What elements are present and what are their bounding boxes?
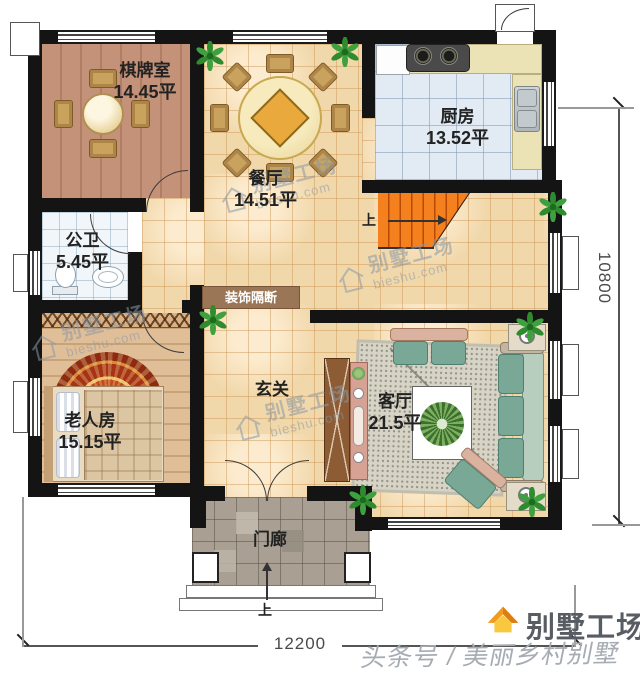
room-label-elder: 老人房15.15平 [35, 410, 145, 454]
porch-step [186, 585, 376, 598]
chess-chair [131, 100, 150, 128]
window-frame [562, 429, 579, 479]
brand-logo-text: 别墅工场 [526, 604, 640, 646]
room-label-living: 客厅21.5平 [345, 391, 445, 435]
stair-direction-line [388, 220, 440, 222]
stove-burner [414, 47, 432, 65]
window [548, 341, 562, 399]
loveseat-cushion [431, 341, 466, 365]
stair-base-line [378, 247, 434, 249]
sofa-cushion [498, 438, 524, 478]
sink-basin [517, 110, 537, 128]
stove-burner [440, 47, 458, 65]
room-label-chess: 棋牌室14.45平 [85, 60, 205, 104]
window [388, 517, 500, 530]
dim-extension [22, 497, 24, 647]
sofa-cushion [498, 396, 524, 436]
wall-kitchen-bottom [362, 180, 562, 193]
porch-pillar [344, 552, 371, 583]
plant-icon [538, 192, 568, 222]
dim-extension [592, 524, 640, 526]
window [58, 30, 155, 44]
window-frame [562, 344, 579, 396]
window [542, 82, 556, 146]
plant-icon [517, 487, 547, 517]
window [548, 426, 562, 482]
window [233, 30, 327, 44]
dim-line-height [618, 108, 620, 526]
wall-bath-right [128, 252, 142, 300]
dim-height-label: 10800 [594, 248, 614, 308]
stair-up-label: 上 [362, 210, 376, 230]
room-label-porch: 门廊 [230, 529, 310, 550]
window-frame [13, 254, 28, 292]
window [548, 233, 562, 293]
loveseat-cushion [393, 341, 428, 365]
wall-porch-left-stub [190, 486, 206, 528]
plant-icon [515, 312, 545, 342]
chess-chair [54, 100, 73, 128]
sink-basin [517, 89, 537, 107]
wall-chess-bottom [42, 198, 146, 212]
brand-house-icon [482, 598, 524, 640]
dining-chair [210, 104, 229, 132]
dim-line-width [22, 645, 258, 647]
plant-icon [348, 485, 378, 515]
room-label-bath: 公卫5.45平 [35, 230, 130, 274]
window [58, 483, 155, 497]
sofa-cushion [498, 354, 524, 394]
window-frame [13, 381, 28, 433]
kitchen-backdoor-gap [497, 30, 533, 44]
entry-direction-line [266, 570, 268, 600]
chimney-outline [10, 22, 40, 56]
fridge [376, 45, 410, 75]
dim-extension [558, 107, 634, 109]
porch-pillar [192, 552, 219, 583]
porch-step [179, 598, 383, 611]
plant-icon [330, 37, 360, 67]
plant-icon [198, 305, 228, 335]
entry-arrowhead-icon [262, 562, 272, 571]
window-frame [562, 236, 579, 290]
stair-arrowhead-icon [438, 215, 447, 225]
console-plant-icon [352, 367, 365, 380]
wall-kitchen-left [362, 30, 375, 118]
wall-bath-bottom [28, 300, 142, 313]
entry-up-label: 上 [258, 600, 272, 620]
dim-width-label: 12200 [258, 634, 342, 654]
loveseat-back [390, 328, 468, 341]
chess-chair [89, 139, 117, 158]
room-label-dining: 餐厅14.51平 [208, 168, 323, 212]
sofa-back [522, 350, 544, 482]
console-vase [353, 452, 364, 463]
room-label-foyer: 玄关 [237, 379, 307, 400]
dining-chair [266, 54, 294, 73]
dining-chair [331, 104, 350, 132]
room-label-kitchen: 厨房13.52平 [400, 106, 515, 150]
kitchen-doorway-floor [362, 118, 375, 180]
floor-plan: 上 [0, 0, 640, 676]
